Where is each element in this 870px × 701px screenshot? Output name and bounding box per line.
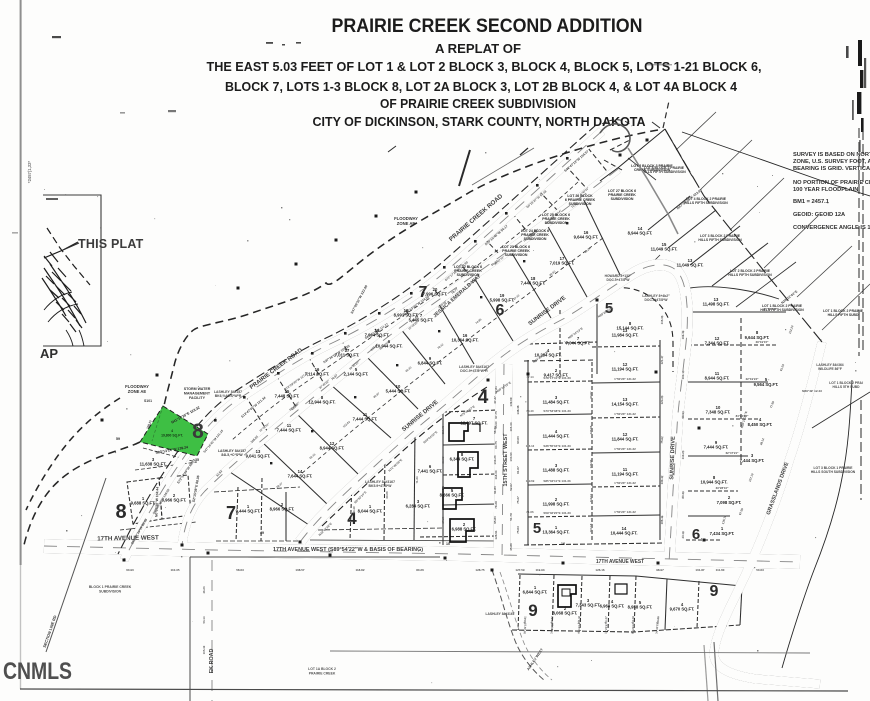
svg-text:78.28: 78.28 (494, 501, 498, 509)
svg-text:S73°29′45″W 127.33: S73°29′45″W 127.33 (283, 371, 309, 391)
svg-text:36,284 SQ.FT.: 36,284 SQ.FT. (406, 499, 431, 509)
svg-text:187,446 SQ.FT.: 187,446 SQ.FT. (521, 276, 546, 286)
svg-text:1410,444 SQ.FT.: 1410,444 SQ.FT. (611, 526, 638, 536)
svg-text:100.90: 100.90 (509, 452, 513, 462)
svg-text:CNMLS: CNMLS (3, 658, 72, 685)
svg-text:66.33: 66.33 (404, 365, 412, 373)
svg-text:77.59: 77.59 (769, 400, 775, 409)
svg-text:148,944 SQ.FT.: 148,944 SQ.FT. (628, 226, 653, 236)
svg-text:1°50′23″ 131.22: 1°50′23″ 131.22 (614, 377, 636, 381)
svg-text:64.40: 64.40 (527, 409, 534, 413)
svg-text:130.42: 130.42 (660, 475, 664, 484)
svg-text:119.93: 119.93 (535, 568, 544, 572)
svg-text:28,068 SQ.FT.: 28,068 SQ.FT. (553, 606, 578, 616)
svg-text:LOT 3 BLOCK 2 PRAIRIEHILLS FIF: LOT 3 BLOCK 2 PRAIRIEHILLS FIFTH SUBDIVI… (698, 234, 742, 242)
svg-text:74.85: 74.85 (474, 317, 482, 325)
svg-text:N89°49′ 12.43: N89°49′ 12.43 (802, 389, 822, 393)
svg-text:45.86: 45.86 (509, 543, 513, 551)
svg-text:118,944 SQ.FT.: 118,944 SQ.FT. (705, 371, 730, 381)
svg-text:N43°54′32″E: N43°54′32″E (422, 430, 438, 444)
svg-text:37,343 SQ.FT.: 37,343 SQ.FT. (576, 598, 601, 608)
svg-text:BEARING IS GRID. VERTICAL: BEARING IS GRID. VERTICAL (793, 166, 870, 172)
svg-text:169,644 SQ.FT.: 169,644 SQ.FT. (574, 230, 599, 240)
svg-text:60.90: 60.90 (126, 568, 134, 572)
svg-text:A REPLAT OF: A REPLAT OF (435, 41, 521, 56)
svg-text:127.59: 127.59 (515, 568, 525, 572)
svg-text:NO PORTION OF PRAIRIE CR: NO PORTION OF PRAIRIE CR (793, 180, 870, 186)
svg-text:46,968 SQ.FT.: 46,968 SQ.FT. (600, 599, 625, 609)
svg-text:LOT 27 BLOCK 6PRAIRIE CREEKSUB: LOT 27 BLOCK 6PRAIRIE CREEKSUBDIVISION (608, 189, 636, 201)
svg-text:8: 8 (192, 420, 204, 443)
svg-text:LOT 8 BLOCK 2 PRAIRIEHILLS FIF: LOT 8 BLOCK 2 PRAIRIEHILLS FIFTH SUBDIVI… (642, 166, 686, 174)
svg-text:110.20: 110.20 (681, 450, 685, 459)
svg-text:712,097 SQ.FT.: 712,097 SQ.FT. (461, 416, 488, 426)
svg-text:EK ROAD: EK ROAD (209, 648, 215, 673)
svg-text:N38°12′44″E: N38°12′44″E (780, 289, 799, 305)
svg-text:103.10: 103.10 (681, 370, 685, 379)
svg-text:7: 7 (226, 503, 236, 523)
svg-text:121.47: 121.47 (660, 355, 664, 364)
svg-text:AP: AP (40, 346, 58, 361)
svg-text:90.87: 90.87 (372, 391, 380, 399)
svg-text:815,144 SQ.FT.: 815,144 SQ.FT. (617, 321, 644, 331)
svg-text:75.63: 75.63 (516, 526, 520, 534)
svg-text:LASHLEY 84#15784L5,+C*S*W: LASHLEY 84#15784L5,+C*S*W (218, 449, 246, 457)
svg-text:53.14: 53.14 (202, 616, 206, 623)
svg-text:118.82: 118.82 (355, 568, 364, 572)
svg-text:1211,194 SQ.FT.: 1211,194 SQ.FT. (612, 362, 639, 372)
svg-text:95.80: 95.80 (493, 516, 497, 524)
svg-text:PRAIRIE CREEK SECOND ADDITION: PRAIRIE CREEK SECOND ADDITION (332, 16, 643, 37)
svg-text:22°19′24″: 22°19′24″ (746, 377, 759, 381)
svg-text:GRASSLANDS DRIVE: GRASSLANDS DRIVE (766, 461, 791, 516)
svg-text:128,944 SQ.FT.: 128,944 SQ.FT. (320, 441, 345, 451)
svg-text:58,958 SQ.FT.: 58,958 SQ.FT. (628, 600, 653, 610)
svg-text:124.20: 124.20 (660, 395, 664, 404)
svg-text:LOT 3 BLOCK 1 PRAIRIEHILLS SOU: LOT 3 BLOCK 1 PRAIRIEHILLS SOUTH SUBDIVI… (811, 466, 856, 474)
svg-text:N71°46′30″E: N71°46′30″E (387, 458, 403, 473)
svg-text:58.63: 58.63 (236, 568, 244, 572)
svg-text:113,364 SQ.FT.: 113,364 SQ.FT. (543, 525, 570, 535)
svg-text:195,998 SQ.FT.: 195,998 SQ.FT. (490, 293, 515, 303)
svg-text:17TH AVENUE WEST (S89°54′22″W: 17TH AVENUE WEST (S89°54′22″W & BASIS OF… (273, 547, 423, 553)
svg-text:LOT 1 BLOCK 2 PRAIHILLS 5TH SU: LOT 1 BLOCK 2 PRAIHILLS 5TH SUBD (829, 381, 863, 389)
svg-text:122.83: 122.83 (342, 420, 351, 429)
svg-text:111.60: 111.60 (716, 568, 725, 572)
svg-text:SECTION LINE RD: SECTION LINE RD (42, 614, 58, 648)
svg-text:311,488 SQ.FT.: 311,488 SQ.FT. (543, 463, 570, 473)
svg-text:OF PRAIRIE CREEK SUBDIVISION: OF PRAIRIE CREEK SUBDIVISION (380, 97, 576, 111)
svg-text:33°28′10″: 33°28′10″ (716, 486, 729, 490)
svg-text:127.10: 127.10 (748, 472, 755, 482)
svg-text:56.85: 56.85 (441, 456, 445, 463)
svg-text:28,966 SQ.FT.: 28,966 SQ.FT. (270, 502, 295, 512)
svg-text:ZONE, U.S. SURVEY FOOT, A: ZONE, U.S. SURVEY FOOT, A (793, 159, 870, 165)
svg-text:103.20: 103.20 (493, 455, 497, 465)
svg-text:1°50′23″ 131.22: 1°50′23″ 131.22 (614, 412, 636, 416)
svg-text:LASHLEY 84#3167DOC.9+4T/8*W*R: LASHLEY 84#3167DOC.9+4T/8*W*R (459, 365, 489, 373)
svg-text:LASHLEY 84#3167: LASHLEY 84#3167 (485, 612, 514, 616)
svg-text:47.37: 47.37 (493, 396, 497, 404)
svg-text:1610,364 SQ.FT.: 1610,364 SQ.FT. (452, 333, 479, 343)
svg-text:67.10: 67.10 (512, 293, 520, 301)
svg-text:LOT 2 BLOCK 2 PRAIRIEHILLS FIF: LOT 2 BLOCK 2 PRAIRIEHILLS FIFTH SUBDIVI… (728, 269, 772, 277)
svg-text:112.23: 112.23 (788, 325, 795, 335)
svg-text:6: 6 (692, 526, 700, 543)
svg-text:1311,049 SQ.FT.: 1311,049 SQ.FT. (677, 258, 704, 268)
svg-text:1°50′23″ 131.22: 1°50′23″ 131.22 (614, 481, 636, 485)
svg-text:S78°17′41″E 131.33: S78°17′41″E 131.33 (543, 376, 571, 380)
svg-text:123.30: 123.30 (589, 459, 593, 468)
svg-text:97.81: 97.81 (494, 386, 498, 394)
svg-text:67,441 SQ.FT.: 67,441 SQ.FT. (418, 464, 443, 474)
svg-text:80.26: 80.26 (416, 568, 424, 572)
svg-text:LASHLEY 8+4b2″DOC.3+4T/8*W: LASHLEY 8+4b2″DOC.3+4T/8*W (642, 294, 670, 302)
svg-text:62°47′21″: 62°47′21″ (726, 451, 739, 455)
svg-text:61.67: 61.67 (516, 466, 520, 474)
svg-text:5: 5 (533, 520, 541, 537)
svg-text:FLOODWAYZONE AE: FLOODWAYZONE AE (394, 216, 418, 226)
svg-text:116.13: 116.13 (526, 444, 535, 448)
svg-text:98.93: 98.93 (681, 411, 685, 419)
svg-text:107.18: 107.18 (589, 523, 593, 532)
svg-text:75.62: 75.62 (660, 436, 664, 444)
svg-text:ASHLEY WEST: ASHLEY WEST (526, 647, 544, 671)
svg-text:GEOID: GEOID 12A: GEOID: GEOID 12A (793, 212, 845, 218)
svg-text:59.49: 59.49 (352, 506, 356, 513)
svg-text:49,670 SQ.FT.: 49,670 SQ.FT. (670, 602, 695, 612)
svg-text:52.15: 52.15 (308, 452, 316, 460)
svg-text:63.75: 63.75 (494, 441, 498, 449)
svg-text:57.59: 57.59 (441, 516, 445, 523)
svg-text:810,944 SQ.FT.: 810,944 SQ.FT. (701, 475, 728, 485)
svg-text:LASHLEY 84#3167BK5.9+4T/8*W: LASHLEY 84#3167BK5.9+4T/8*W (365, 480, 395, 488)
svg-text:98.97: 98.97 (656, 568, 664, 572)
svg-text:19,444 SQ.FT.: 19,444 SQ.FT. (236, 504, 261, 514)
svg-text:S101: S101 (144, 399, 152, 403)
svg-text:119.11: 119.11 (589, 493, 593, 502)
svg-text:19,688 SQ.FT.: 19,688 SQ.FT. (131, 496, 156, 506)
svg-text:80.39: 80.39 (681, 491, 685, 499)
svg-text:45°53′34″: 45°53′34″ (764, 307, 777, 311)
svg-text:71.34: 71.34 (415, 476, 419, 483)
svg-text:91.80: 91.80 (493, 486, 497, 494)
svg-text:S85°32′11″E 131.33: S85°32′11″E 131.33 (543, 479, 571, 483)
svg-text:49: 49 (260, 531, 264, 535)
svg-text:*2457(1,32*: *2457(1,32* (27, 161, 32, 183)
svg-text:S36°55′34″E 131.33: S36°55′34″E 131.33 (543, 444, 571, 448)
svg-text:110.35: 110.35 (170, 568, 179, 572)
svg-text:411,444 SQ.FT.: 411,444 SQ.FT. (543, 429, 570, 439)
svg-text:17TH AVENUE WEST: 17TH AVENUE WEST (596, 559, 645, 565)
svg-text:128.91: 128.91 (494, 530, 498, 540)
svg-text:N0°05′38″W 104.44: N0°05′38″W 104.44 (154, 487, 159, 517)
svg-text:119.68: 119.68 (441, 425, 445, 434)
svg-text:17,434 SQ.FT.: 17,434 SQ.FT. (710, 526, 735, 536)
svg-text:47.14: 47.14 (527, 375, 534, 379)
svg-text:51.78: 51.78 (509, 513, 513, 521)
svg-text:78.12: 78.12 (436, 342, 444, 350)
svg-text:97.75: 97.75 (494, 411, 498, 419)
svg-text:26,988 SQ.FT.: 26,988 SQ.FT. (452, 522, 477, 532)
svg-text:139.69: 139.69 (526, 479, 535, 483)
svg-text:HOWARD 8+132″DOC.5+4T/8*W: HOWARD 8+132″DOC.5+4T/8*W (605, 274, 632, 282)
svg-text:91.23: 91.23 (779, 363, 785, 372)
svg-text:CONVERGENCE ANGLE IS 1: CONVERGENCE ANGLE IS 1 (793, 225, 870, 231)
svg-text:50.63: 50.63 (756, 568, 764, 572)
svg-text:1°50′23″ 131.22: 1°50′23″ 131.22 (614, 510, 636, 514)
svg-text:89,644 SQ.FT.: 89,644 SQ.FT. (745, 330, 770, 340)
svg-text:S73°53′38″E 131.33: S73°53′38″E 131.33 (543, 409, 571, 413)
svg-text:1314,154 SQ.FT.: 1314,154 SQ.FT. (612, 397, 639, 407)
svg-text:FLOODWAYZONE AE: FLOODWAYZONE AE (125, 384, 149, 394)
svg-text:97,444 SQ.FT.: 97,444 SQ.FT. (704, 440, 729, 450)
svg-text:1311,498 SQ.FT.: 1311,498 SQ.FT. (703, 297, 730, 307)
svg-text:52.67: 52.67 (509, 483, 513, 491)
svg-text:6: 6 (496, 302, 505, 319)
svg-text:86,344 SQ.FT.: 86,344 SQ.FT. (450, 452, 475, 462)
svg-text:10: 10 (446, 542, 450, 546)
svg-text:107,348 SQ.FT.: 107,348 SQ.FT. (706, 405, 731, 415)
svg-text:108.57: 108.57 (295, 568, 305, 572)
svg-text:81.66: 81.66 (527, 510, 534, 514)
svg-text:118.33: 118.33 (494, 470, 498, 479)
svg-text:106.39: 106.39 (681, 330, 685, 339)
svg-text:311,638 SQ.FT.: 311,638 SQ.FT. (140, 457, 167, 467)
svg-text:96,844 SQ.FT.: 96,844 SQ.FT. (418, 356, 443, 366)
svg-text:75.27: 75.27 (516, 496, 520, 504)
svg-text:27,098 SQ.FT.: 27,098 SQ.FT. (717, 495, 742, 505)
svg-text:1111,194 SQ.FT.: 1111,194 SQ.FT. (612, 467, 639, 477)
svg-text:63.90: 63.90 (494, 421, 498, 428)
svg-text:16: 16 (561, 542, 565, 546)
svg-text:105,444 SQ.FT.: 105,444 SQ.FT. (386, 384, 411, 394)
svg-text:59: 59 (116, 437, 120, 441)
svg-text:1211,844 SQ.FT.: 1211,844 SQ.FT. (612, 432, 639, 442)
svg-text:SURVEY IS BASED ON NORT: SURVEY IS BASED ON NORT (793, 152, 870, 158)
svg-text:101.83: 101.83 (441, 485, 445, 494)
svg-text:123.88: 123.88 (589, 425, 593, 434)
svg-text:128.75: 128.75 (475, 568, 485, 572)
svg-text:S59°32′20″E 131.33: S59°32′20″E 131.33 (543, 511, 571, 515)
svg-text:67.36: 67.36 (738, 507, 744, 516)
svg-text:115.34: 115.34 (509, 422, 513, 431)
svg-text:LOT 1A BLOCK 2PRAIRIE CREEK: LOT 1A BLOCK 2PRAIRIE CREEK (308, 667, 336, 675)
svg-text:9: 9 (528, 601, 537, 620)
svg-text:N85°14′13″E: N85°14′13″E (567, 326, 584, 340)
svg-text:18,044 SQ.FT.: 18,044 SQ.FT. (358, 504, 383, 514)
svg-text:LOT 23 BLOCK 6PRAIRIE CREEKSUB: LOT 23 BLOCK 6PRAIRIE CREEKSUBDIVISION (502, 245, 530, 257)
svg-text:90.60: 90.60 (516, 436, 520, 444)
svg-text:126.16: 126.16 (595, 568, 605, 572)
svg-text:101.87: 101.87 (695, 568, 705, 572)
svg-text:1°50′23″ 131.22: 1°50′23″ 131.22 (614, 447, 636, 451)
svg-text:LASHLEY 84#157BK6,%4C/S*W*R: LASHLEY 84#157BK6,%4C/S*W*R (214, 390, 242, 398)
svg-text:CITY OF DICKINSON, STARK COUNT: CITY OF DICKINSON, STARK COUNTY, NORTH D… (313, 114, 647, 129)
svg-text:46.23: 46.23 (202, 586, 206, 593)
svg-text:35: 35 (195, 458, 199, 462)
svg-text:105.46: 105.46 (660, 515, 664, 524)
svg-text:29°19′15″: 29°19′15″ (756, 340, 769, 344)
svg-text:90.67: 90.67 (589, 391, 593, 398)
svg-text:BM1 = 2457.1: BM1 = 2457.1 (793, 199, 829, 205)
svg-text:43.18: 43.18 (681, 531, 685, 539)
svg-text:127,344 SQ.FT.: 127,344 SQ.FT. (705, 336, 730, 346)
svg-text:THIS PLAT: THIS PLAT (78, 237, 144, 251)
svg-text:16,844 SQ.FT.: 16,844 SQ.FT. (523, 585, 548, 595)
svg-text:LOT 1 BLOCK 2 PRAIRIEHILLS FIF: LOT 1 BLOCK 2 PRAIRIEHILLS FIFTH SUBD (823, 309, 864, 317)
svg-text:105.42: 105.42 (202, 645, 206, 654)
svg-text:S47°09′32″W 323.80: S47°09′32″W 323.80 (350, 284, 369, 314)
svg-text:STORM WATERMANAGEMENTFACILITY: STORM WATERMANAGEMENTFACILITY (184, 387, 211, 400)
svg-text:PRAIRIE CREEK ROAD: PRAIRIE CREEK ROAD (249, 348, 304, 391)
svg-text:LASHLEY 84#364WILDLIFE 86″F: LASHLEY 84#364WILDLIFE 86″F (816, 363, 843, 371)
svg-text:138.46: 138.46 (516, 405, 520, 415)
svg-text:211,998 SQ.FT.: 211,998 SQ.FT. (543, 497, 570, 507)
svg-text:BLOCK 1 PRAIRIE CREEKSUBDIVISI: BLOCK 1 PRAIRIE CREEKSUBDIVISION (89, 585, 132, 593)
svg-text:311,484 SQ.FT.: 311,484 SQ.FT. (543, 395, 570, 405)
svg-text:177,019 SQ.FT.: 177,019 SQ.FT. (550, 256, 575, 266)
svg-text:48.12: 48.12 (759, 437, 765, 446)
svg-text:139.69: 139.69 (509, 397, 513, 407)
svg-text:37,444 SQ.FT.: 37,444 SQ.FT. (740, 453, 765, 463)
svg-text:69.88: 69.88 (385, 491, 389, 498)
svg-text:115.35: 115.35 (660, 315, 664, 324)
svg-text:THE EAST 5.03 FEET OF LOT 1 &: THE EAST 5.03 FEET OF LOT 1 & LOT 2 BLOC… (207, 59, 762, 74)
svg-text:8: 8 (115, 501, 126, 523)
svg-text:N5°52′14″E: N5°52′14″E (353, 490, 367, 504)
svg-text:BLOCK 7, LOTS 1-3 BLOCK 8, LO: BLOCK 7, LOTS 1-3 BLOCK 8, LOT 2A BLOCK … (225, 79, 738, 94)
svg-text:9: 9 (710, 583, 719, 600)
svg-text:17TH AVENUE WEST: 17TH AVENUE WEST (97, 534, 159, 542)
svg-text:4: 4 (478, 387, 489, 408)
